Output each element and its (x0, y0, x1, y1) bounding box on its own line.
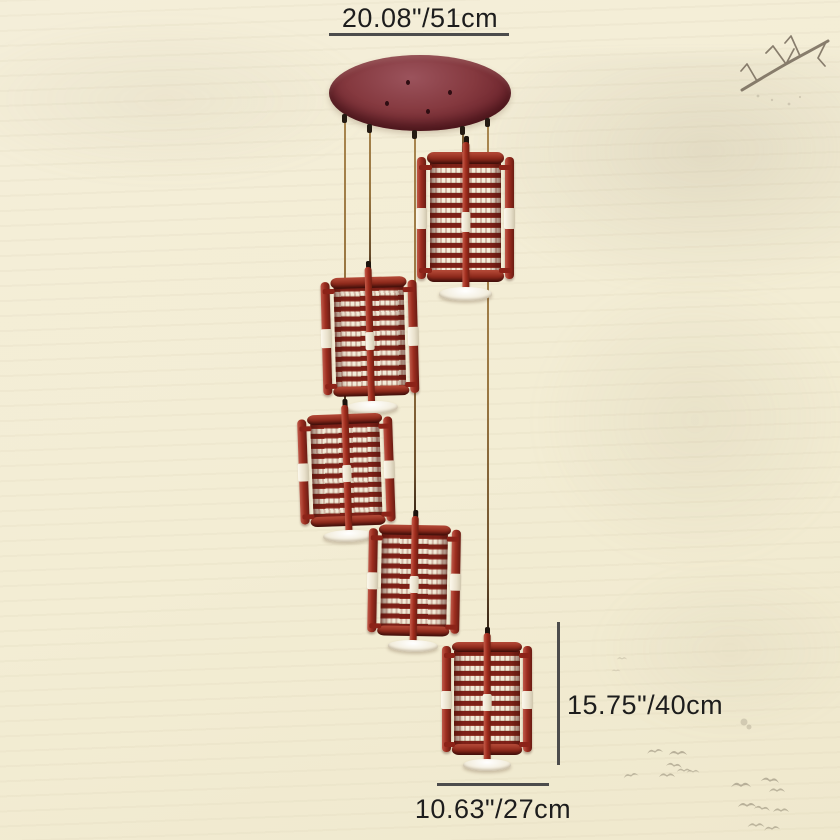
post-accent-band (342, 465, 352, 482)
lantern-diffuser (388, 639, 438, 652)
post-accent-band (365, 331, 375, 349)
lantern-arm (444, 742, 456, 747)
dimension-width-label: 20.08"/51cm (308, 3, 532, 34)
canopy-screw-hole (385, 101, 389, 106)
lantern-side-post-left (320, 282, 332, 395)
post-accent-band (384, 461, 396, 479)
dimension-width-line (329, 33, 509, 36)
post-accent-band (441, 691, 452, 709)
lantern-arm (405, 382, 418, 387)
post-accent-band (522, 691, 533, 709)
lantern-arm (444, 653, 456, 658)
lantern-center-post (462, 142, 469, 294)
lantern-side-post-right (450, 530, 461, 634)
post-accent-band (408, 327, 419, 346)
lantern-side-post-left (367, 528, 378, 632)
post-accent-band (483, 694, 492, 711)
product-image: 20.08"/51cm 15.75"/40cm 10.63"/27cm (0, 0, 840, 840)
lantern-side-post-left (297, 420, 310, 525)
post-accent-band (450, 573, 461, 591)
lantern-arm (371, 535, 383, 540)
post-accent-band (298, 464, 310, 482)
cord-fitting (412, 130, 417, 139)
canopy-screw-hole (426, 109, 430, 114)
canopy-screw-hole (406, 80, 410, 85)
lantern-center-post (484, 633, 491, 764)
post-accent-band (461, 212, 470, 232)
lantern-arm (519, 742, 531, 747)
ceiling-canopy (329, 55, 511, 131)
lantern-arm (499, 165, 512, 170)
post-accent-band (409, 576, 418, 593)
post-accent-band (321, 329, 332, 348)
canopy-screw-hole (448, 90, 452, 95)
cord-fitting (342, 114, 347, 123)
lantern-body (309, 413, 383, 527)
lantern-body (379, 525, 449, 637)
lantern-arm (402, 287, 415, 292)
lantern-arm (445, 624, 457, 629)
lantern-pendant (417, 143, 514, 301)
lantern-diffuser (463, 759, 512, 771)
lantern-arm (499, 268, 512, 273)
post-accent-band (367, 572, 378, 590)
lantern-arm (519, 653, 531, 658)
lantern-body (430, 152, 502, 282)
lantern-arm (323, 289, 336, 294)
lantern-body (333, 276, 407, 398)
lantern-side-post-left (417, 157, 426, 279)
lantern-body (454, 642, 521, 754)
lantern-side-post-right (523, 646, 532, 751)
post-accent-band (416, 208, 427, 229)
lantern-side-post-left (442, 646, 451, 751)
dimension-drop-line (557, 622, 560, 765)
lantern-diffuser (323, 529, 375, 543)
cord-fitting (367, 124, 372, 133)
lantern-diffuser (439, 287, 491, 301)
post-accent-band (504, 208, 515, 229)
dimension-shade-line (437, 783, 549, 786)
lantern-arm (447, 536, 459, 541)
lantern-arm (325, 384, 338, 389)
dimension-shade-label: 10.63"/27cm (403, 794, 583, 825)
lantern-arm (419, 165, 432, 170)
cord-fitting (460, 126, 465, 135)
lantern-arm (419, 268, 432, 273)
lantern-side-post-right (505, 157, 514, 279)
dimension-drop-label: 15.75"/40cm (567, 690, 723, 721)
lantern-pendant (442, 634, 532, 771)
lantern-pendant (367, 516, 461, 653)
lantern-side-post-right (383, 417, 396, 522)
lantern-arm (299, 426, 312, 431)
lantern-pendant (320, 267, 420, 415)
lantern-arm (369, 623, 381, 628)
cord-fitting (485, 118, 490, 127)
lantern-arm (378, 423, 391, 428)
